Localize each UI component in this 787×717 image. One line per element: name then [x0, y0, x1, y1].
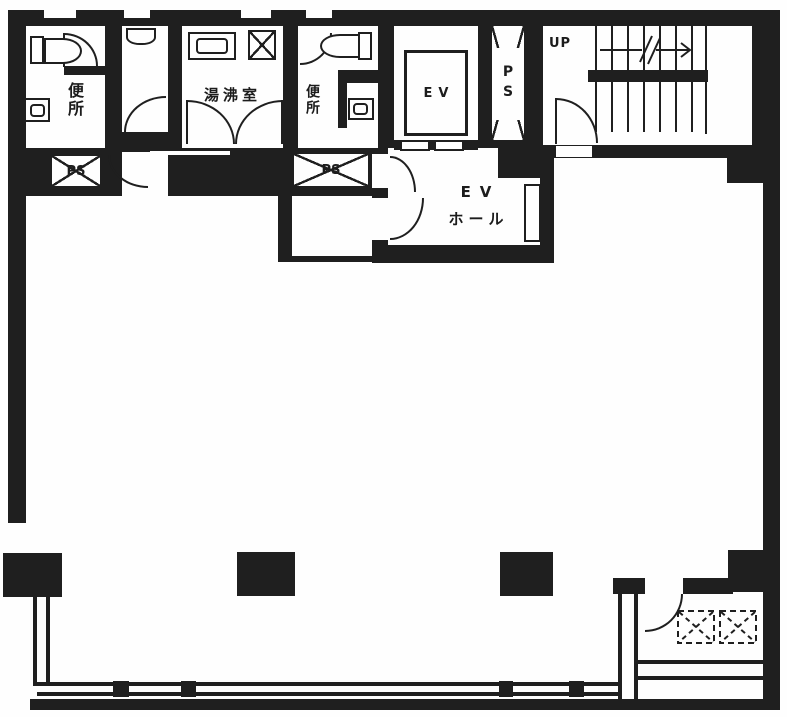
column [500, 552, 553, 596]
toilet-bowl [320, 34, 360, 58]
door-swing-icon [187, 100, 235, 144]
wall-right-upper [752, 10, 780, 158]
door-leaf [281, 100, 283, 144]
toilet-bowl [44, 38, 82, 64]
window-notch [306, 10, 332, 18]
door-opening [372, 198, 388, 240]
door-sill [150, 151, 230, 155]
wall [388, 245, 554, 263]
column [237, 552, 295, 596]
door-swing-icon [124, 96, 166, 132]
window-mullion [569, 681, 584, 697]
wall-line [634, 594, 638, 706]
room-label-stairs-up: UP [549, 36, 571, 51]
window-mullion [113, 681, 129, 697]
equipment-dashed-box [677, 610, 715, 644]
wall-bottom [30, 699, 780, 710]
wall [524, 26, 543, 148]
stair-rail [588, 70, 708, 82]
elevator-sill [400, 140, 430, 151]
door-leaf [186, 100, 188, 144]
wall [278, 196, 292, 262]
wall [540, 178, 554, 263]
door-swing-icon [235, 100, 283, 144]
wall [292, 256, 372, 262]
elevator-sill [434, 140, 464, 151]
sink-basin [30, 104, 45, 117]
stall-partition [64, 66, 112, 75]
door-opening [556, 146, 592, 157]
equipment-dashed-box [719, 610, 757, 644]
door-swing-icon [390, 198, 424, 240]
wall [498, 145, 554, 178]
door-leaf [555, 98, 557, 144]
room-label-elevator: EV [404, 50, 468, 136]
wall-corridor-band [168, 148, 292, 196]
shaft-x-icon [250, 32, 274, 58]
door-swing-icon [390, 156, 416, 192]
room-label-shaft-vertical: PS [496, 48, 520, 120]
stall-partition [338, 70, 378, 83]
toilet-tank [30, 36, 44, 64]
window-line [638, 676, 763, 680]
sink-basin [353, 103, 368, 115]
room-label-ev-hall: ホール [420, 206, 532, 230]
room-label-shaft-left: PS [50, 154, 102, 188]
window-notch [124, 10, 150, 18]
stair-direction-arrow-icon [592, 30, 710, 70]
window-mullion [181, 681, 196, 697]
window-mullion [499, 681, 513, 697]
room-label-toilet-left: 便所 [62, 82, 86, 118]
room-label-shaft-center: PS [292, 152, 370, 188]
stall-partition [338, 83, 347, 128]
toilet-tank [358, 32, 372, 60]
wall-line [618, 594, 622, 706]
door-opening [645, 578, 683, 594]
wall [478, 26, 492, 148]
door-swing-icon [556, 98, 598, 143]
kitchen-sink-basin [196, 38, 228, 54]
wall-step [727, 158, 763, 183]
wall [378, 26, 394, 148]
window-line [33, 597, 37, 686]
wall [168, 26, 182, 148]
stair-treads-lower [595, 82, 707, 132]
window-line [46, 597, 50, 686]
room-label-toilet-right: 便所 [302, 84, 322, 116]
wall-right [763, 158, 780, 707]
window-notch [241, 10, 271, 18]
wall [122, 132, 168, 152]
floor-plan: 便所 湯沸室 便所 EV PS UP PS [0, 0, 787, 717]
urinal [126, 28, 156, 45]
wall [283, 26, 298, 148]
window-notch [44, 10, 76, 18]
wall [105, 26, 122, 148]
door-opening [372, 154, 388, 188]
column [3, 553, 62, 597]
room-label-ev-hall: EV [420, 180, 532, 204]
column [728, 550, 780, 592]
window-line [638, 660, 763, 664]
